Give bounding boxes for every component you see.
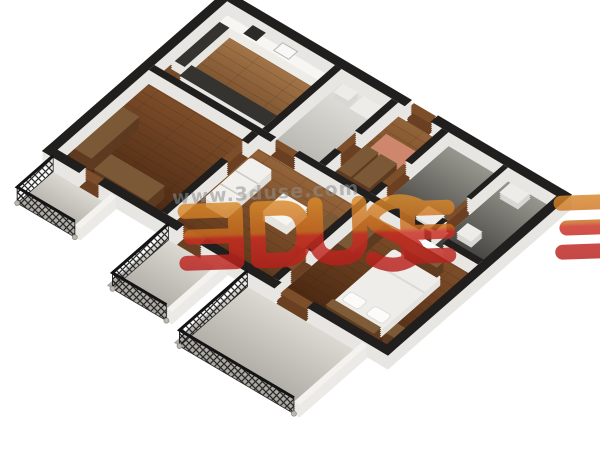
logo-letter-E bbox=[407, 207, 449, 256]
logo-partial-repeat bbox=[561, 202, 600, 253]
floor-plan-render: www.3duse.com 3DUSE bbox=[0, 0, 600, 450]
floor-plan-svg: www.3duse.com 3DUSE bbox=[0, 0, 600, 450]
